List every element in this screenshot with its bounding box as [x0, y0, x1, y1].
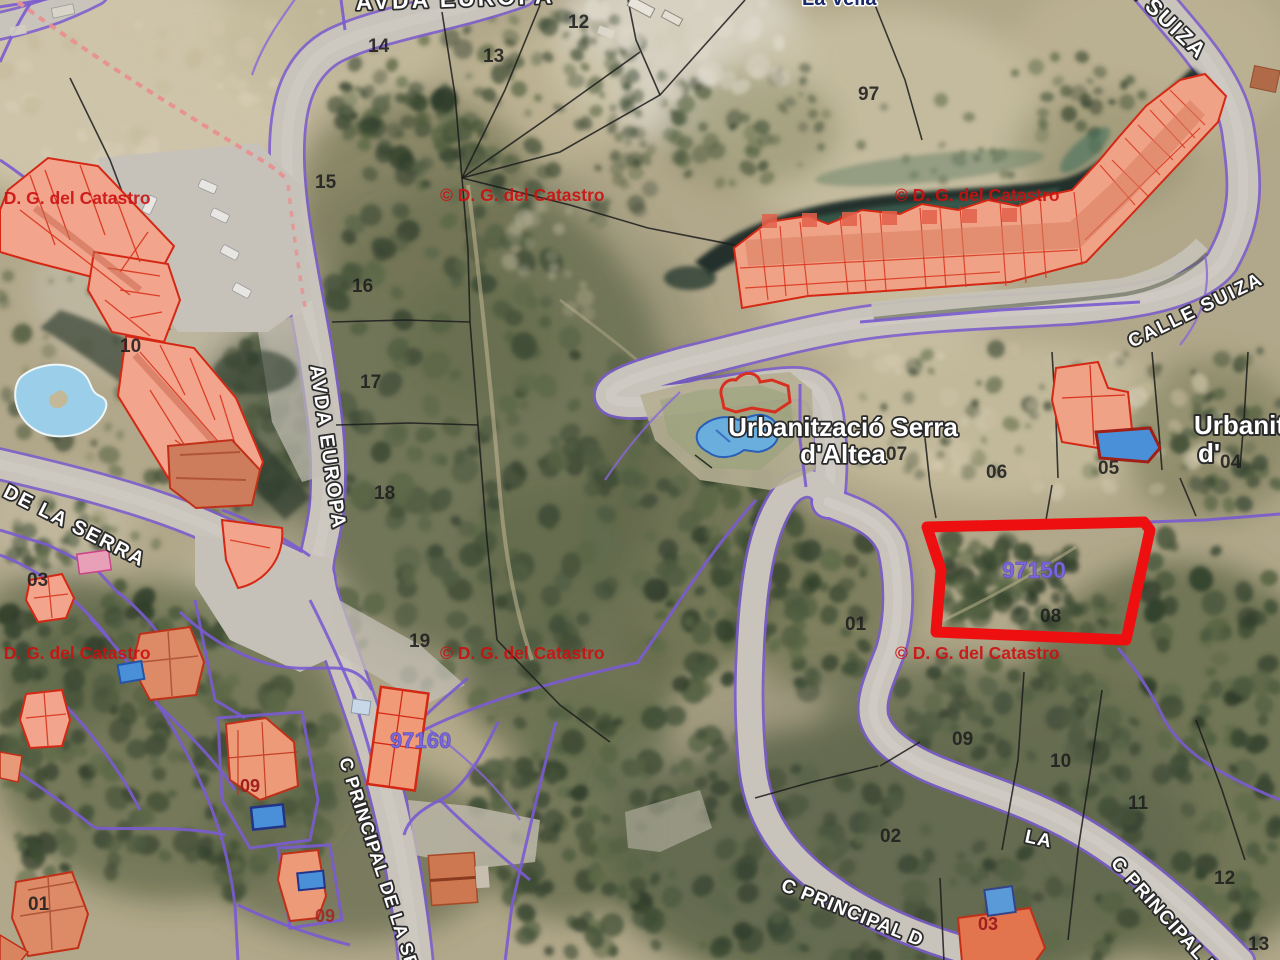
svg-text:09: 09: [952, 729, 973, 750]
svg-text:© D. G. del Catastro: © D. G. del Catastro: [895, 185, 1060, 205]
svg-text:13: 13: [483, 46, 504, 67]
svg-text:© D. G. del Catastro: © D. G. del Catastro: [0, 188, 151, 208]
svg-text:Urbanit: Urbanit: [1194, 410, 1280, 440]
svg-text:04: 04: [1220, 452, 1242, 473]
svg-text:03: 03: [27, 570, 48, 591]
svg-text:16: 16: [352, 276, 373, 297]
svg-text:10: 10: [120, 336, 141, 357]
svg-text:01: 01: [845, 614, 867, 635]
svg-text:18: 18: [374, 483, 395, 504]
svg-text:© D. G. del Catastro: © D. G. del Catastro: [895, 643, 1060, 663]
svg-text:12: 12: [1214, 868, 1235, 889]
svg-text:© D. G. del Catastro: © D. G. del Catastro: [0, 643, 151, 663]
svg-text:08: 08: [1040, 606, 1061, 627]
svg-text:13: 13: [1248, 934, 1269, 955]
svg-text:06: 06: [986, 462, 1007, 483]
svg-text:09: 09: [240, 776, 260, 796]
svg-text:09: 09: [315, 906, 335, 926]
svg-text:97150: 97150: [1002, 557, 1066, 583]
svg-text:19: 19: [409, 631, 430, 652]
svg-text:Urbanització Serra: Urbanització Serra: [728, 412, 958, 442]
svg-text:La Vella: La Vella: [802, 0, 877, 10]
svg-text:97160: 97160: [390, 728, 451, 753]
svg-text:14: 14: [368, 36, 390, 57]
svg-text:10: 10: [1050, 751, 1071, 772]
svg-text:15: 15: [315, 172, 337, 193]
svg-text:17: 17: [360, 372, 381, 393]
svg-text:© D. G. del Catastro: © D. G. del Catastro: [440, 643, 605, 663]
svg-text:d'Altea: d'Altea: [800, 439, 886, 469]
svg-text:97: 97: [858, 84, 879, 105]
svg-text:02: 02: [880, 826, 901, 847]
svg-text:01: 01: [28, 894, 50, 915]
svg-text:03: 03: [978, 914, 998, 934]
svg-text:12: 12: [568, 12, 589, 33]
svg-text:05: 05: [1098, 458, 1120, 479]
svg-text:11: 11: [1128, 793, 1149, 814]
svg-text:© D. G. del Catastro: © D. G. del Catastro: [440, 185, 605, 205]
svg-text:07: 07: [886, 444, 907, 465]
svg-text:d': d': [1198, 438, 1220, 468]
